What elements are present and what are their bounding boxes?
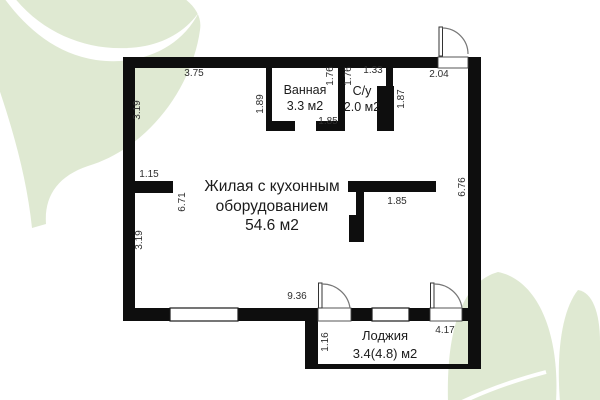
entry-door-opening xyxy=(438,57,468,68)
wall-loggia-seg-b xyxy=(409,308,430,321)
dim-right-span: 6.76 xyxy=(457,172,469,202)
loggia-door-2-leaf xyxy=(431,283,435,308)
entry-door-icon xyxy=(438,27,468,68)
kitchen-partition-top xyxy=(348,181,436,192)
dim-bottom-span: 9.36 xyxy=(282,291,312,303)
wall-bottom-left xyxy=(123,308,170,321)
dim-wc-right: 1.87 xyxy=(396,84,408,114)
room-label-loggia: Лоджия 3.4(4.8) м2 xyxy=(325,327,445,363)
loggia-name: Лоджия xyxy=(325,327,445,345)
living-name-line1: Жилая с кухонным xyxy=(190,177,354,197)
entry-door-swing-arc xyxy=(443,28,469,54)
dim-wc-left: 1.76 xyxy=(343,61,355,91)
loggia-door-1-icon xyxy=(318,283,351,321)
loggia-door-2-opening xyxy=(430,308,462,321)
loggia-door-1-leaf xyxy=(319,283,323,308)
wc-area: 2.0 м2 xyxy=(339,99,385,115)
dim-kitchen-bottom: 1.85 xyxy=(382,196,412,208)
dim-entry-top: 2.04 xyxy=(424,69,454,81)
wall-stub-left xyxy=(135,181,173,193)
dim-loggia-left: 1.16 xyxy=(320,327,332,357)
dim-bath-left: 1.89 xyxy=(255,89,267,119)
window-loggia-wall xyxy=(372,308,409,321)
wall-loggia-seg-a xyxy=(351,308,372,321)
dim-top-span: 3.75 xyxy=(179,68,209,80)
dim-left-upper: 3.19 xyxy=(132,95,144,125)
entry-door-leaf xyxy=(439,27,443,56)
loggia-area: 3.4(4.8) м2 xyxy=(325,345,445,363)
dim-left-lower: 3.19 xyxy=(134,225,146,255)
living-area: 54.6 м2 xyxy=(190,216,354,236)
window-living-room xyxy=(170,308,238,321)
dim-bath-bottom: 1.85 xyxy=(313,116,343,128)
wall-loggia-left xyxy=(305,308,318,368)
wall-bathroom-bottom xyxy=(266,121,295,131)
loggia-door-2-swing-arc xyxy=(434,284,462,308)
dim-loggia-top: 4.17 xyxy=(430,325,460,337)
loggia-door-1-opening xyxy=(318,308,351,321)
wall-top xyxy=(123,57,438,68)
dim-bath-right: 1.76 xyxy=(325,61,337,91)
dim-stub-top: 1.15 xyxy=(134,169,164,181)
kitchen-partition-mid xyxy=(356,192,364,215)
wall-loggia-seg-c xyxy=(462,308,468,321)
dim-wc-top: 1.33 xyxy=(358,65,388,77)
wall-right xyxy=(468,57,481,369)
loggia-door-2-icon xyxy=(430,283,462,321)
floor-plan-canvas: Ванная 3.3 м2 С/у 2.0 м2 Жилая с кухонны… xyxy=(0,0,600,400)
loggia-glazing xyxy=(305,364,481,369)
bathroom-area: 3.3 м2 xyxy=(272,98,338,114)
living-name-line2: оборудованием xyxy=(190,197,354,217)
loggia-door-1-swing-arc xyxy=(322,284,350,308)
room-label-living: Жилая с кухонным оборудованием 54.6 м2 xyxy=(190,177,354,236)
dim-stub-right: 6.71 xyxy=(177,187,189,217)
